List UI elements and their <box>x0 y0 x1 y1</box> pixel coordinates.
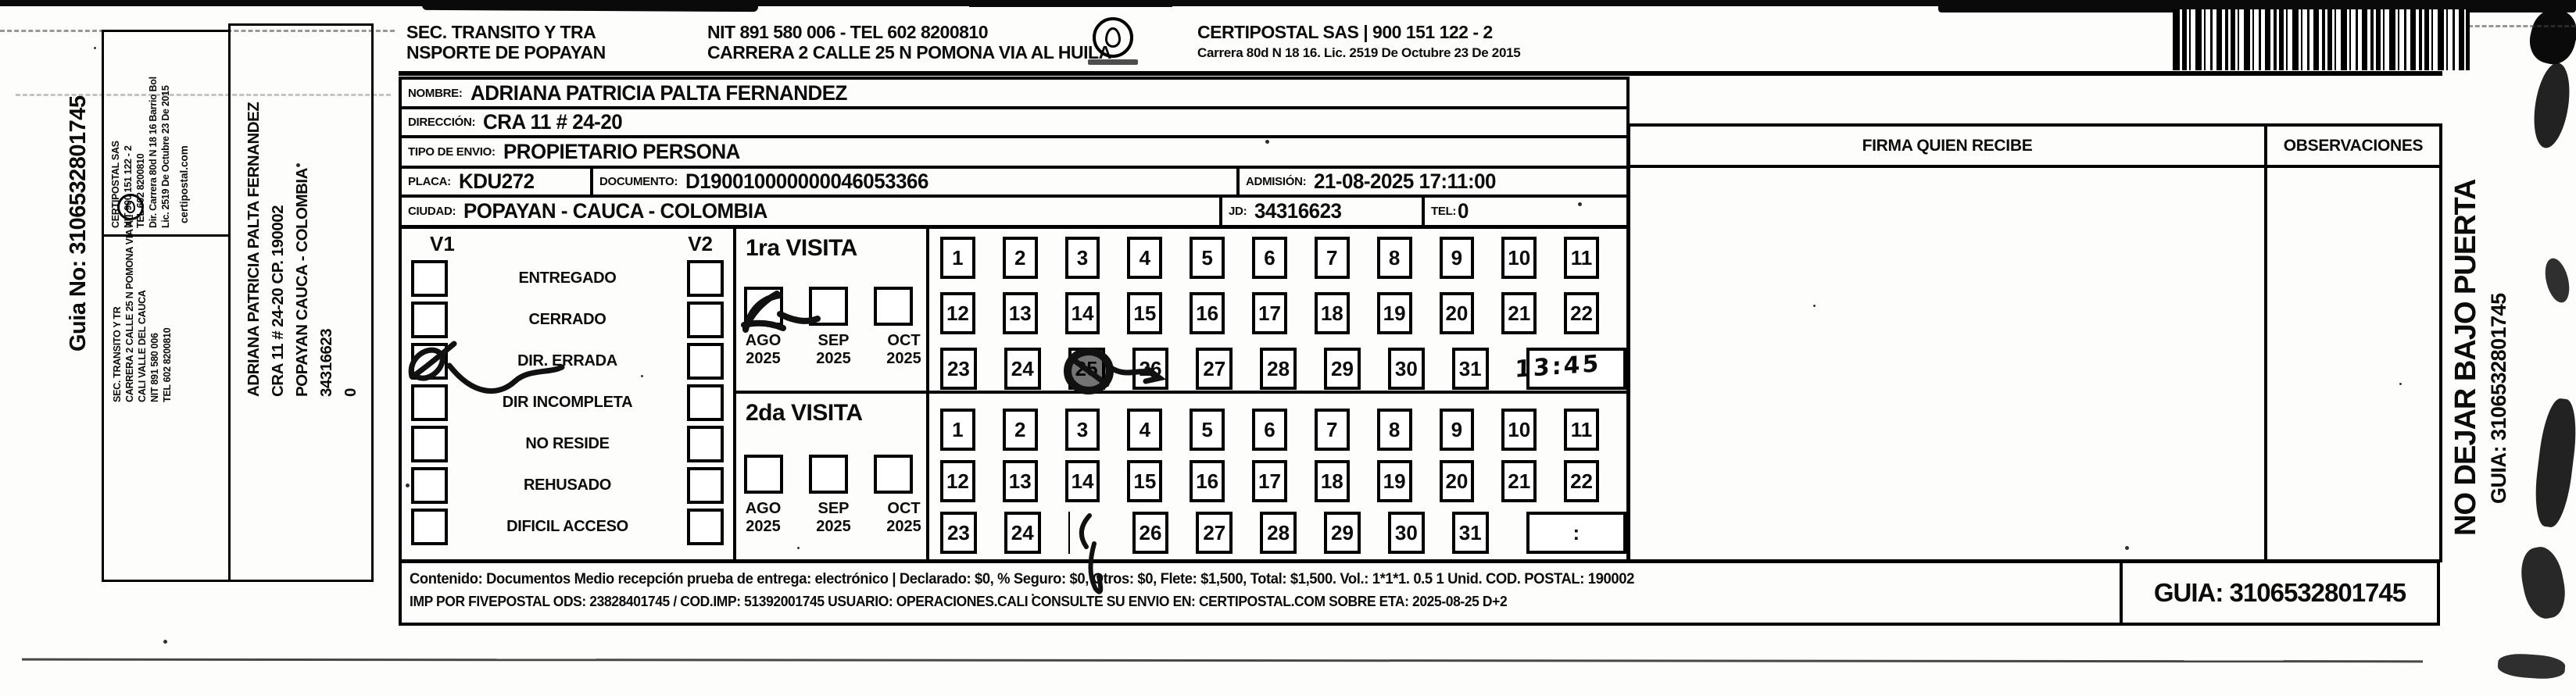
field-ciudad: CIUDAD: POPAYAN - CAUCA - COLOMBIA <box>399 195 1222 228</box>
visit1-day-24: 24 <box>1004 348 1041 390</box>
visit2-day-24: 24 <box>1004 512 1041 554</box>
header-sender-contact: NIT 891 580 006 - TEL 602 8200810 CARRER… <box>707 22 1111 62</box>
visit2-day-13: 13 <box>1003 460 1038 502</box>
scan-smudge <box>2517 544 2571 622</box>
sender-info-line-1: CARRERA 2 CALLE 25 N POMONA VIA AL <box>123 215 136 402</box>
observaciones-area <box>2264 165 2442 562</box>
visit2-day-2: 2 <box>1003 409 1038 451</box>
logo-microtext <box>1088 59 1138 65</box>
scan-smudge <box>2497 652 2566 680</box>
visit1-day-18: 18 <box>1315 292 1350 334</box>
v1-column-header: V1 <box>430 232 455 256</box>
firma-header: FIRMA QUIEN RECIBE <box>1627 123 2267 168</box>
visit2-day-15: 15 <box>1127 460 1162 502</box>
visit2-day-11: 11 <box>1564 409 1599 451</box>
visit1-day-23: 23 <box>940 348 977 390</box>
sender-info-line-2: CALI VALLE DEL CAUCA <box>136 215 148 402</box>
guia-number-right-rotated: GUIA: 3106532801745 <box>2487 293 2511 504</box>
destination-info-line-0: ADRIANA PATRICIA PALTA FERNANDEZ <box>241 102 266 397</box>
visit2-month-label-ago: AGO2025 <box>741 500 785 536</box>
visit2-month-checkbox-oct <box>874 455 913 494</box>
visit2-time-box: : <box>1526 512 1626 554</box>
header-sender-nit: NIT 891 580 006 - TEL 602 8200810 <box>707 22 1111 42</box>
destination-info-line-2: POPAYAN CAUCA - COLOMBIA <box>290 102 314 397</box>
field-documento: DOCUMENTO: D190010000000046053366 <box>590 166 1240 198</box>
visit1-day-27: 27 <box>1196 348 1233 390</box>
visit2-day-row-2: 1213141516171819202122 <box>929 460 1626 502</box>
field-admision: ADMISIÓN: 21-08-2025 17:11:00 <box>1236 166 1630 198</box>
footer-fineprint: Contenido: Documentos Medio recepción pr… <box>399 560 2123 626</box>
visit1-day-31: 31 <box>1452 348 1489 390</box>
visit2-day-22: 22 <box>1564 460 1599 502</box>
visit2-day-26: 26 <box>1132 512 1169 554</box>
visit1-day-16: 16 <box>1190 292 1225 334</box>
direccion-value: CRA 11 # 24-20 <box>483 110 622 134</box>
visit1-day-20: 20 <box>1440 292 1475 334</box>
nombre-value: ADRIANA PATRICIA PALTA FERNANDEZ <box>470 81 847 105</box>
field-nombre: NOMBRE: ADRIANA PATRICIA PALTA FERNANDEZ <box>399 77 1630 109</box>
jd-value: 34316623 <box>1254 199 1341 223</box>
shipment-barcode <box>2173 9 2470 70</box>
ciudad-label: CIUDAD: <box>408 205 456 218</box>
footer-guia-box: GUIA: 3106532801745 <box>2120 560 2440 626</box>
v2-checkbox-dificil-acceso <box>687 509 724 545</box>
firma-header-label: FIRMA QUIEN RECIBE <box>1862 137 2033 155</box>
visit1-day-28: 28 <box>1260 348 1297 390</box>
visit2-day-17: 17 <box>1252 460 1287 502</box>
header-rule <box>399 71 2442 76</box>
footer-line2: IMP POR FIVEPOSTAL ODS: 23828401745 / CO… <box>410 594 2068 610</box>
observaciones-header: OBSERVACIONES <box>2264 123 2442 168</box>
visit2-cell: 2da VISITA AGO2025SEP2025OCT2025 <box>733 391 929 562</box>
header-carrier-license: Carrera 80d N 18 16. Lic. 2519 De Octubr… <box>1197 45 1520 61</box>
v2-checkbox-dir-incompleta <box>687 384 724 421</box>
v1-checkbox-dificil-acceso <box>411 509 448 545</box>
destination-info-lines: ADRIANA PATRICIA PALTA FERNANDEZCRA 11 #… <box>241 102 363 397</box>
visit1-day-1: 1 <box>940 237 975 279</box>
sender-info-line-3: NIT 891 580 006 <box>148 215 161 402</box>
documento-value: D190010000000046053366 <box>685 170 928 194</box>
visit2-day-20: 20 <box>1440 460 1475 502</box>
visit1-month-label-oct: OCT2025 <box>882 332 926 368</box>
visit2-month-labels: AGO2025SEP2025OCT2025 <box>736 500 926 536</box>
visit1-day-8: 8 <box>1377 237 1412 279</box>
no-dejar-warning-rotated: NO DEJAR BAJO PUERTA <box>2449 180 2483 536</box>
admision-label: ADMISIÓN: <box>1246 175 1306 188</box>
visit2-day-9: 9 <box>1440 409 1475 451</box>
visit2-day-19: 19 <box>1377 460 1412 502</box>
visit2-day-16: 16 <box>1190 460 1225 502</box>
visit2-month-checkbox-sep <box>809 455 848 494</box>
visit2-day-12: 12 <box>940 460 975 502</box>
visit1-day-22: 22 <box>1564 292 1599 334</box>
visit1-day-11: 11 <box>1564 237 1599 279</box>
visit1-day-29: 29 <box>1324 348 1361 390</box>
v2-checkbox-no-reside <box>687 426 724 462</box>
field-jd: JD: 34316623 <box>1219 195 1425 228</box>
visit1-month-checkbox-oct <box>874 287 913 326</box>
carrier-info-line-4: Lic. 2519 De Octubre 23 De 2015 <box>159 77 172 228</box>
scan-specks <box>94 47 96 49</box>
visit1-day-row-1: 1234567891011 <box>929 237 1626 279</box>
visit1-day-10: 10 <box>1501 237 1537 279</box>
visit1-day-19: 19 <box>1377 292 1412 334</box>
scan-smudge <box>969 0 1172 7</box>
observaciones-header-label: OBSERVACIONES <box>2284 137 2424 155</box>
visit2-day-8: 8 <box>1377 409 1412 451</box>
visit1-day-13: 13 <box>1003 292 1038 334</box>
header-carrier: CERTIPOSTAL SAS | 900 151 122 - 2 Carrer… <box>1197 22 1520 61</box>
scan-smudge <box>422 0 758 12</box>
visit1-day-7: 7 <box>1315 237 1350 279</box>
visit2-day-27: 27 <box>1196 512 1233 554</box>
v1-checkbox-rehusado <box>411 467 448 504</box>
visit1-day-6: 6 <box>1252 237 1287 279</box>
sender-info-line-0: SEC. TRANSITO Y TR <box>111 215 123 402</box>
handwritten-circle-day-25 <box>1055 334 1180 406</box>
status-row-entregado: ENTREGADO <box>411 258 724 299</box>
visit1-day-15: 15 <box>1127 292 1162 334</box>
scan-smudge <box>2531 397 2576 529</box>
visit2-day-row-1: 1234567891011 <box>929 409 1626 451</box>
handwritten-check-dir-errada <box>395 328 574 406</box>
tipo-envio-value: PROPIETARIO PERSONA <box>503 140 740 164</box>
header-sender-address: CARRERA 2 CALLE 25 N POMONA VIA AL HUILA <box>707 42 1111 62</box>
destination-info-line-4: 0 <box>338 102 363 397</box>
visit2-day-5: 5 <box>1190 409 1225 451</box>
visit1-title: 1ra VISITA <box>736 229 926 262</box>
v1-checkbox-entregado <box>411 260 448 297</box>
v1-checkbox-no-reside <box>411 426 448 462</box>
visit1-day-12: 12 <box>940 292 975 334</box>
header-carrier-name: CERTIPOSTAL SAS | 900 151 122 - 2 <box>1197 22 1520 42</box>
status-label-rehusado: REHUSADO <box>448 476 687 494</box>
handwritten-x-ago-2025 <box>735 284 828 347</box>
visit2-month-checkbox-ago <box>744 455 783 494</box>
tel-value: 0 <box>1458 199 1469 223</box>
visit2-day-23: 23 <box>940 512 977 554</box>
carrier-website-rotated: certipostal.com <box>178 145 190 223</box>
status-label-dificil-acceso: DIFICIL ACCESO <box>448 518 687 536</box>
v2-checkbox-rehusado <box>687 467 724 504</box>
visit1-day-2: 2 <box>1003 237 1038 279</box>
status-row-no-reside: NO RESIDE <box>411 423 724 465</box>
visit1-day-9: 9 <box>1440 237 1475 279</box>
visit1-day-4: 4 <box>1127 237 1162 279</box>
scan-smudge <box>2529 60 2575 150</box>
nombre-label: NOMBRE: <box>408 87 463 100</box>
scan-smudge <box>2524 5 2576 69</box>
visit2-day-18: 18 <box>1315 460 1350 502</box>
status-label-cerrado: CERRADO <box>448 311 687 329</box>
visit2-day-29: 29 <box>1324 512 1361 554</box>
visit2-day-row-3: 232425262728293031: <box>929 512 1626 554</box>
header-sender-name: SEC. TRANSITO Y TRA NSPORTE DE POPAYAN <box>406 22 606 62</box>
v2-checkbox-entregado <box>687 260 724 297</box>
v2-checkbox-cerrado <box>687 302 724 338</box>
visit1-day-21: 21 <box>1501 292 1537 334</box>
visit2-day-7: 7 <box>1315 409 1350 451</box>
visit2-day-6: 6 <box>1252 409 1287 451</box>
field-tipo-envio: TIPO DE ENVIO: PROPIETARIO PERSONA <box>399 135 1630 169</box>
footer-line1: Contenido: Documentos Medio recepción pr… <box>410 571 2068 588</box>
guia-number-rotated: Guia No: 3106532801745 <box>66 95 91 352</box>
visit2-day-21: 21 <box>1501 460 1537 502</box>
visit2-day-grid: 1234567891011121314151617181920212223242… <box>926 391 1630 562</box>
placa-value: KDU272 <box>459 170 535 194</box>
jd-label: JD: <box>1229 205 1247 218</box>
direccion-label: DIRECCIÓN: <box>408 116 475 129</box>
destination-info-line-1: CRA 11 # 24-20 CP. 190002 <box>266 102 290 397</box>
visit1-day-row-2: 1213141516171819202122 <box>929 292 1626 334</box>
ciudad-value: POPAYAN - CAUCA - COLOMBIA <box>463 199 767 223</box>
v2-column-header: V2 <box>688 232 713 256</box>
sender-info-line-4: TEL 602 8200810 <box>161 215 174 402</box>
visit1-day-17: 17 <box>1252 292 1287 334</box>
visit2-day-14: 14 <box>1065 460 1100 502</box>
status-row-dificil-acceso: DIFICIL ACCESO <box>411 506 724 548</box>
documento-label: DOCUMENTO: <box>599 175 678 188</box>
scan-edge-bottom <box>22 659 2423 663</box>
visit2-day-28: 28 <box>1260 512 1297 554</box>
visit1-day-5: 5 <box>1190 237 1225 279</box>
field-tel: TEL: 0 <box>1422 195 1630 228</box>
visit2-day-30: 30 <box>1388 512 1425 554</box>
sender-info-lines: SEC. TRANSITO Y TRCARRERA 2 CALLE 25 N P… <box>111 215 174 402</box>
tel-label: TEL: <box>1431 205 1456 218</box>
visit2-day-31: 31 <box>1452 512 1489 554</box>
status-label-no-reside: NO RESIDE <box>448 435 687 453</box>
placa-label: PLACA: <box>408 175 451 188</box>
field-placa: PLACA: KDU272 <box>399 166 593 198</box>
visit1-day-14: 14 <box>1065 292 1100 334</box>
visit2-day-1: 1 <box>940 409 975 451</box>
handwritten-squiggle-day-25-visit2 <box>1061 497 1122 606</box>
tipo-envio-label: TIPO DE ENVIO: <box>408 145 496 159</box>
scan-smudge <box>2541 255 2573 305</box>
status-row-rehusado: REHUSADO <box>411 465 724 506</box>
header-sender-line2: NSPORTE DE POPAYAN <box>406 42 606 62</box>
visit2-month-label-sep: SEP2025 <box>811 500 856 536</box>
visit2-day-4: 4 <box>1127 409 1162 451</box>
firma-area <box>1627 165 2267 562</box>
field-direccion: DIRECCIÓN: CRA 11 # 24-20 <box>399 106 1630 138</box>
visit2-day-3: 3 <box>1065 409 1100 451</box>
scanned-shipping-label: Guia No: 3106532801745 CERTIPOSTAL SASNI… <box>0 0 2576 696</box>
visit2-title: 2da VISITA <box>736 394 926 427</box>
carrier-info-line-3: Dir. Carrera 80d N 18 16 Barrio Bol <box>147 77 159 228</box>
perforation-line <box>2468 25 2576 27</box>
status-label-entregado: ENTREGADO <box>448 269 687 287</box>
visit2-month-checkboxes <box>736 455 926 494</box>
admision-value: 21-08-2025 17:11:00 <box>1314 170 1496 194</box>
v2-checkbox-dir-errada <box>687 343 724 380</box>
destination-info-line-3: 34316623 <box>314 102 338 397</box>
header-sender-line1: SEC. TRANSITO Y TRA <box>406 22 606 42</box>
footer-guia-number: GUIA: 3106532801745 <box>2154 578 2406 608</box>
certipostal-logo-icon <box>1093 17 1133 58</box>
visit2-day-10: 10 <box>1501 409 1537 451</box>
visit2-month-label-oct: OCT2025 <box>882 500 926 536</box>
visit1-day-30: 30 <box>1388 348 1425 390</box>
visit1-day-3: 3 <box>1065 237 1100 279</box>
